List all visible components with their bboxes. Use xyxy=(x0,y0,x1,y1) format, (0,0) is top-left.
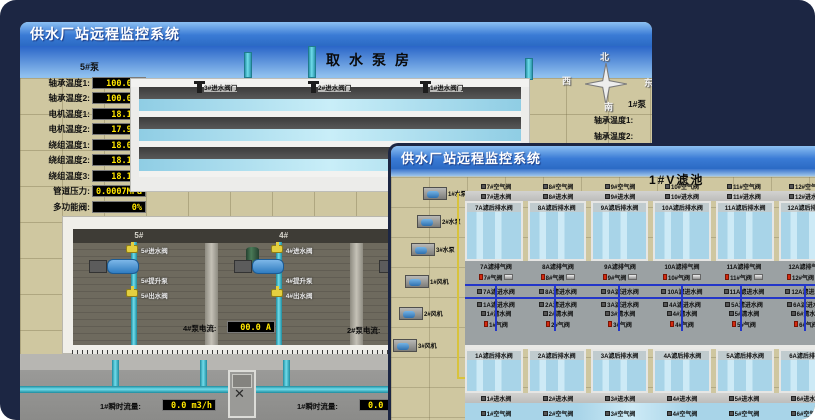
inlet-valve-2[interactable]: 2#进水阀 xyxy=(527,393,589,403)
inlet-valve-6[interactable]: 6#进水阀 xyxy=(775,393,815,403)
compass-east: 东 xyxy=(644,76,652,89)
outlet-pipe-stub xyxy=(283,360,290,388)
air-valve-12[interactable]: 12#空气阀 xyxy=(775,181,815,191)
valve-icon xyxy=(789,194,794,199)
air-valve-10[interactable]: 10#空气阀 xyxy=(651,181,713,191)
valve-icon xyxy=(729,311,734,316)
gas-valve-6[interactable]: 6#气阀 xyxy=(775,318,815,330)
filter-pool: 7#空气阀 8#空气阀 9#空气阀 10#空气阀 11#空气阀 12#空气阀 7… xyxy=(465,181,815,418)
gas-valve-5[interactable]: 5#气阀 xyxy=(713,318,775,330)
inlet-valve-3[interactable]: 3#进水阀 xyxy=(589,393,651,403)
gas-valve-8[interactable]: 8#气阀 xyxy=(527,271,589,283)
inlet-valve-12[interactable]: 12#进水阀 xyxy=(775,191,815,201)
filter-cell-4: 4A滤后排水阀 xyxy=(653,349,711,393)
panel-row: 多功能阀:0% xyxy=(28,199,153,215)
alarm-indicator xyxy=(663,274,667,280)
filter-cell-1: 1A滤后排水阀 xyxy=(465,349,523,393)
top-gas-valve-row: 7#气阀 8#气阀 9#气阀 10#气阀 11#气阀 12#气阀 xyxy=(465,271,815,283)
clean-valve-5[interactable]: 5#清水阀 xyxy=(713,309,775,318)
alarm-indicator xyxy=(484,321,488,327)
outlet-pipe-stub xyxy=(112,360,119,388)
filter-inlet-5A[interactable]: 5A滤进水阀 xyxy=(713,300,775,309)
gas-valve-12[interactable]: 12#气阀 xyxy=(775,271,815,283)
gas-valve-3[interactable]: 3#气阀 xyxy=(589,318,651,330)
valve-icon xyxy=(667,411,672,416)
valve-icon xyxy=(665,184,670,189)
valve-icon xyxy=(605,194,610,199)
valve-icon xyxy=(601,289,606,294)
filter-cells-bottom: 1A滤后排水阀 2A滤后排水阀 3A滤后排水阀 4A滤后排水阀 5A滤后排水阀 … xyxy=(465,349,815,393)
alarm-indicator xyxy=(479,274,483,280)
blower-icon xyxy=(399,307,423,320)
valve-icon xyxy=(601,302,606,307)
inlet-valve-icon[interactable] xyxy=(271,245,283,253)
filter-inlet-9A[interactable]: 9A滤进水阀 xyxy=(589,287,651,296)
valve-icon xyxy=(727,194,732,199)
valve-icon xyxy=(477,289,482,294)
pump-icon xyxy=(417,215,441,228)
valve-icon xyxy=(481,411,486,416)
valve-icon xyxy=(481,396,486,401)
clean-valve-2[interactable]: 2#清水阀 xyxy=(527,309,589,318)
valve-icon xyxy=(791,396,796,401)
alarm-indicator xyxy=(787,274,791,280)
vertical-pipe xyxy=(804,285,806,331)
gate-valve-icon xyxy=(423,81,428,93)
intake-gate-valve-2[interactable]: 2#进水阀门 xyxy=(311,81,351,93)
vertical-pipe xyxy=(740,285,742,331)
air-valve-7[interactable]: 7#空气阀 xyxy=(465,181,527,191)
valve-icon xyxy=(667,396,672,401)
valve-icon xyxy=(539,302,544,307)
value-box: 0% xyxy=(92,201,146,213)
bottom-gas-valve-row: 1#气阀 2#气阀 3#气阀 4#气阀 5#气阀 6#气阀 xyxy=(465,318,815,330)
outlet-pipe-stub xyxy=(200,360,207,388)
valve-icon xyxy=(481,311,486,316)
blower-3[interactable]: 3#风机 xyxy=(393,339,437,352)
tank-icon xyxy=(504,274,513,280)
valve-icon xyxy=(543,396,548,401)
exhaust-valve-10A[interactable]: 10A滤排气阀 xyxy=(651,262,713,271)
exhaust-valve-9A[interactable]: 9A滤排气阀 xyxy=(589,262,651,271)
bottom-water-valve-row: 1#进水阀 2#进水阀 3#进水阀 4#进水阀 5#进水阀 6#进水阀 xyxy=(465,393,815,403)
pipe-corridor: 7A滤排气阀 8A滤排气阀 9A滤排气阀 10A滤排气阀 11A滤排气阀 12A… xyxy=(465,261,815,345)
exhaust-valve-12A[interactable]: 12A滤排气阀 xyxy=(775,262,815,271)
vertical-pipe xyxy=(618,285,620,331)
inlet-valve-icon[interactable] xyxy=(126,245,138,253)
filter-cell-12: 12A滤后排水阀 xyxy=(779,201,815,261)
top-filter-inlet-row: 7A滤进水阀 8A滤进水阀 9A滤进水阀 10A滤进水阀 11A滤进水阀 12A… xyxy=(465,287,815,296)
valve-icon xyxy=(543,311,548,316)
air-valve-1[interactable]: 1#空气阀 xyxy=(465,409,527,418)
filter-cell-10: 10A滤后排水阀 xyxy=(653,201,711,261)
air-valve-8[interactable]: 8#空气阀 xyxy=(527,181,589,191)
air-valve-4[interactable]: 4#空气阀 xyxy=(651,409,713,418)
valve-icon xyxy=(665,194,670,199)
window2-title: 供水厂站远程监控系统 xyxy=(401,148,541,167)
flow-meter-icon[interactable] xyxy=(228,370,256,418)
gas-valve-7[interactable]: 7#气阀 xyxy=(465,271,527,283)
outlet-valve-icon[interactable] xyxy=(271,289,283,297)
inlet-valve-9[interactable]: 9#进水阀 xyxy=(589,191,651,201)
window1-titlebar[interactable]: 供水厂站远程监控系统 xyxy=(20,22,652,46)
outlet-valve-icon[interactable] xyxy=(126,289,138,297)
valve-icon xyxy=(543,184,548,189)
top-air-valve-row: 7#空气阀 8#空气阀 9#空气阀 10#空气阀 11#空气阀 12#空气阀 xyxy=(465,181,815,191)
valve-icon xyxy=(539,289,544,294)
flow-value-box: 0.0 m3/h xyxy=(162,399,216,411)
valve-icon xyxy=(481,194,486,199)
gas-valve-11[interactable]: 11#气阀 xyxy=(713,271,775,283)
clean-water-valve-row: 1#清水阀 2#清水阀 3#清水阀 4#清水阀 5#清水阀 6#清水阀 xyxy=(465,309,815,318)
filter-inlet-8A[interactable]: 8A滤进水阀 xyxy=(527,287,589,296)
backwash-pump-3[interactable]: 3#水泵 xyxy=(411,243,455,256)
alarm-indicator xyxy=(670,321,674,327)
pump1-panel-header: 1#泵 xyxy=(628,98,646,110)
tank-icon xyxy=(628,274,637,280)
air-valve-2[interactable]: 2#空气阀 xyxy=(527,409,589,418)
alarm-indicator xyxy=(732,321,736,327)
valve-icon xyxy=(791,411,796,416)
desktop-canvas: 供水厂站远程监控系统 取水泵房 5#泵 轴承温度1:100.0°C 轴承温度2:… xyxy=(0,0,815,420)
pump-icon xyxy=(423,187,447,200)
valve-icon xyxy=(667,311,672,316)
gate-valve-icon xyxy=(311,81,316,93)
blower-icon xyxy=(393,339,417,352)
alarm-indicator xyxy=(603,274,607,280)
air-valve-5[interactable]: 5#空气阀 xyxy=(713,409,775,418)
alarm-indicator xyxy=(546,321,550,327)
top-exhaust-valve-row: 7A滤排气阀 8A滤排气阀 9A滤排气阀 10A滤排气阀 11A滤排气阀 12A… xyxy=(465,262,815,271)
gas-valve-9[interactable]: 9#气阀 xyxy=(589,271,651,283)
pump1-data-panel: 1#泵 轴承温度1: 轴承温度2: xyxy=(594,98,646,142)
valve-icon xyxy=(729,396,734,401)
alarm-indicator xyxy=(608,321,612,327)
valve-icon xyxy=(729,411,734,416)
backwash-pump-1[interactable]: 1#水泵 xyxy=(423,187,467,200)
pipe-stub xyxy=(308,46,316,78)
inlet-valve-8[interactable]: 8#进水阀 xyxy=(527,191,589,201)
inlet-valve-4[interactable]: 4#进水阀 xyxy=(651,393,713,403)
valve-icon xyxy=(663,302,668,307)
exhaust-valve-8A[interactable]: 8A滤排气阀 xyxy=(527,262,589,271)
gas-valve-10[interactable]: 10#气阀 xyxy=(651,271,713,283)
scene-title: 取水泵房 xyxy=(326,50,418,70)
tank-icon xyxy=(566,274,575,280)
air-valve-3[interactable]: 3#空气阀 xyxy=(589,409,651,418)
pump5-panel-header: 5#泵 xyxy=(80,60,153,73)
inlet-valve-5[interactable]: 5#进水阀 xyxy=(713,393,775,403)
inlet-header-pipe xyxy=(465,297,815,299)
valve-icon xyxy=(543,411,548,416)
filter-inlet-12A[interactable]: 12A滤进水阀 xyxy=(775,287,815,296)
filter-cells-top: 7A滤后排水阀 8A滤后排水阀 9A滤后排水阀 10A滤后排水阀 11A滤后排水… xyxy=(465,201,815,261)
blower-2[interactable]: 2#风机 xyxy=(399,307,443,320)
tank-icon xyxy=(754,274,763,280)
bottom-filter-inlet-row: 1A滤进水阀 2A滤进水阀 3A滤进水阀 4A滤进水阀 5A滤进水阀 6A滤进水… xyxy=(465,300,815,309)
intake-gate-valve-3[interactable]: 3#进水阀门 xyxy=(197,81,237,93)
lift-pump-icon[interactable] xyxy=(89,259,141,274)
gas-valve-2[interactable]: 2#气阀 xyxy=(527,318,589,330)
current-value-box: 00.0 A xyxy=(227,321,275,333)
pipe-stub xyxy=(244,52,252,78)
filter-scene: 1#V滤池 1#水泵 2#水泵 3#水泵 1#风机 2#风机 3#风机 7#空气… xyxy=(391,169,815,420)
blower-icon xyxy=(405,275,429,288)
inlet-header-pipe xyxy=(465,284,815,286)
filter-cell-6: 6A滤后排水阀 xyxy=(779,349,815,393)
filter-cell-11: 11A滤后排水阀 xyxy=(716,201,774,261)
intake-channel: 3#进水阀门 2#进水阀门 1#进水阀门 xyxy=(139,87,521,117)
filter-cell-2: 2A滤后排水阀 xyxy=(528,349,586,393)
valve-icon xyxy=(605,411,610,416)
air-header-pipe xyxy=(457,193,459,379)
tank-icon xyxy=(692,274,701,280)
vertical-pipe xyxy=(681,285,683,331)
window2-titlebar[interactable]: 供水厂站远程监控系统 xyxy=(391,146,815,169)
valve-icon xyxy=(787,302,792,307)
exhaust-valve-7A[interactable]: 7A滤排气阀 xyxy=(465,262,527,271)
compass-north: 北 xyxy=(600,50,609,63)
valve-icon xyxy=(791,311,796,316)
air-valve-11[interactable]: 11#空气阀 xyxy=(713,181,775,191)
valve-icon xyxy=(481,184,486,189)
pipe-stub xyxy=(525,58,533,80)
valve-icon xyxy=(477,302,482,307)
alarm-indicator xyxy=(725,274,729,280)
filter-inlet-6A[interactable]: 6A滤进水阀 xyxy=(775,300,815,309)
filter-cell-8: 8A滤后排水阀 xyxy=(528,201,586,261)
blower-1[interactable]: 1#风机 xyxy=(405,275,449,288)
gate-valve-icon xyxy=(197,81,202,93)
valve-icon xyxy=(724,289,729,294)
valve-icon xyxy=(725,302,730,307)
bottom-air-valve-row: 1#空气阀 2#空气阀 3#空气阀 4#空气阀 5#空气阀 6#空气阀 xyxy=(465,403,815,420)
window-v-filter-pool: 供水厂站远程监控系统 1#V滤池 1#水泵 2#水泵 3#水泵 1#风机 2#风… xyxy=(388,143,815,420)
filter-inlet-2A[interactable]: 2A滤进水阀 xyxy=(527,300,589,309)
valve-icon xyxy=(661,289,666,294)
window1-title: 供水厂站远程监控系统 xyxy=(30,24,180,44)
air-valve-6[interactable]: 6#空气阀 xyxy=(775,409,815,418)
filter-cell-5: 5A滤后排水阀 xyxy=(716,349,774,393)
valve-icon xyxy=(605,184,610,189)
inlet-valve-1[interactable]: 1#进水阀 xyxy=(465,393,527,403)
valve-icon xyxy=(785,289,790,294)
valve-icon xyxy=(605,311,610,316)
intake-gate-valve-1[interactable]: 1#进水阀门 xyxy=(423,81,463,93)
valve-icon xyxy=(543,194,548,199)
inlet-valve-7[interactable]: 7#进水阀 xyxy=(465,191,527,201)
valve-icon xyxy=(605,396,610,401)
vertical-pipe xyxy=(554,285,556,331)
filter-cell-9: 9A滤后排水阀 xyxy=(591,201,649,261)
valve-icon xyxy=(727,184,732,189)
filter-cell-7: 7A滤后排水阀 xyxy=(465,201,523,261)
inlet-valve-10[interactable]: 10#进水阀 xyxy=(651,191,713,201)
filter-cell-3: 3A滤后排水阀 xyxy=(591,349,649,393)
filter-inlet-11A[interactable]: 11A滤进水阀 xyxy=(713,287,775,296)
lift-pump-icon[interactable] xyxy=(234,259,286,274)
alarm-indicator xyxy=(794,321,798,327)
compass-west: 西 xyxy=(562,74,571,87)
exhaust-valve-11A[interactable]: 11A滤排气阀 xyxy=(713,262,775,271)
air-valve-9[interactable]: 9#空气阀 xyxy=(589,181,651,191)
clean-valve-3[interactable]: 3#清水阀 xyxy=(589,309,651,318)
alarm-indicator xyxy=(541,274,545,280)
clean-valve-6[interactable]: 6#清水阀 xyxy=(775,309,815,318)
inlet-valve-11[interactable]: 11#进水阀 xyxy=(713,191,775,201)
filter-inlet-3A[interactable]: 3A滤进水阀 xyxy=(589,300,651,309)
top-water-valve-row: 7#进水阀 8#进水阀 9#进水阀 10#进水阀 11#进水阀 12#进水阀 xyxy=(465,191,815,201)
pump-icon xyxy=(411,243,435,256)
vertical-pipe xyxy=(495,285,497,331)
backwash-pump-2[interactable]: 2#水泵 xyxy=(417,215,461,228)
valve-icon xyxy=(789,184,794,189)
